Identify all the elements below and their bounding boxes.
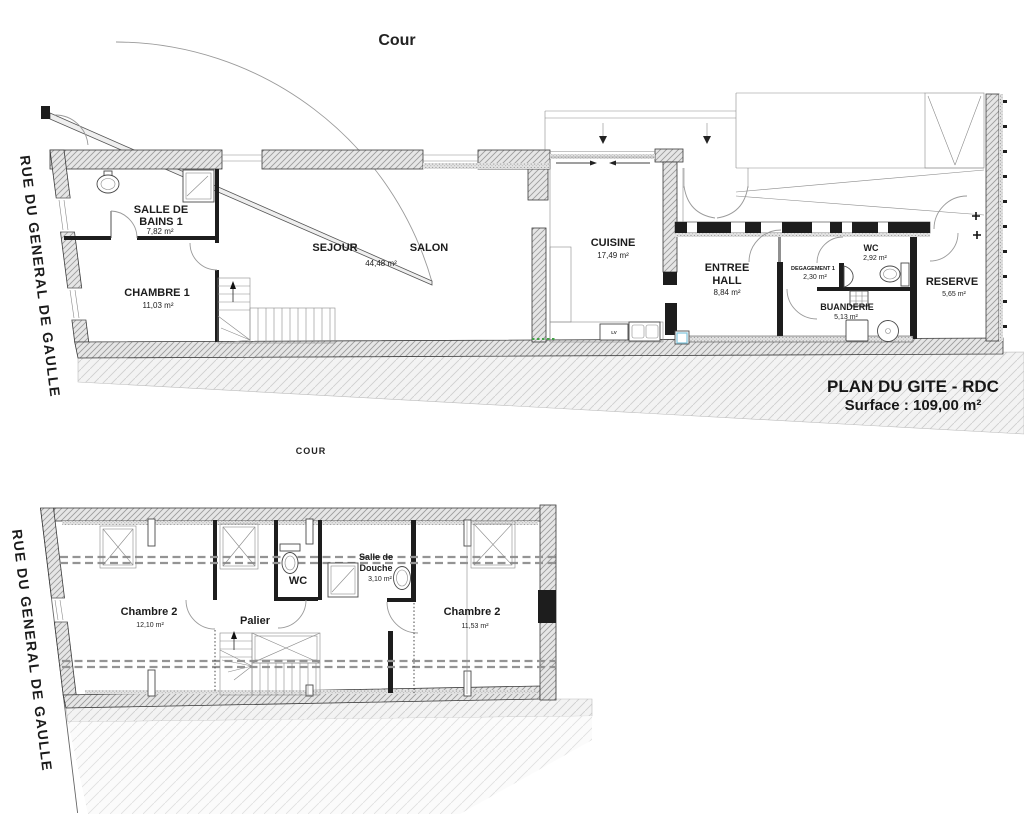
rdc-stairs — [218, 278, 335, 343]
etage-plan: COUR Chambre 2 12,10 m² Palier WC Salle … — [41, 446, 593, 814]
bath-sink-icon — [97, 171, 119, 193]
floor-plan-canvas: Cour SALLE DE BAINS 1 7,82 m² CHAMBRE 1 … — [0, 0, 1024, 814]
glazed-band-piers — [675, 222, 930, 233]
room-area-degagement: 2,30 m² — [803, 274, 827, 281]
plan-title: PLAN DU GITE - RDC — [827, 377, 999, 396]
rdc-canopy-courtyard — [545, 93, 984, 239]
wall-tick-marks — [1003, 100, 1007, 328]
room-label-wc-etage: WC — [289, 575, 307, 587]
room-label-sdb-line1: SALLE DE — [134, 204, 188, 216]
room-area-chambre2-right: 11,53 m² — [461, 623, 489, 630]
room-label-douche-line1: Salle de — [359, 552, 393, 562]
room-label-entree-line1: ENTREE — [705, 262, 750, 274]
dishwasher-label: LV — [611, 330, 616, 335]
wc-sink-icon — [844, 266, 853, 287]
room-area-reserve: 5,65 m² — [942, 291, 966, 298]
floor-plan-page: Cour SALLE DE BAINS 1 7,82 m² CHAMBRE 1 … — [0, 0, 1024, 814]
courtyard-label-etage: COUR — [296, 446, 327, 456]
etage-sink-icon — [394, 567, 411, 590]
room-label-degagement: DEGAGEMENT 1 — [791, 266, 835, 272]
shower-icon — [183, 170, 214, 202]
rdc-plan: Cour SALLE DE BAINS 1 7,82 m² CHAMBRE 1 … — [41, 32, 1024, 434]
room-label-salon: SALON — [410, 242, 449, 254]
room-area-wc: 2,92 m² — [863, 255, 887, 262]
room-label-palier: Palier — [240, 615, 271, 627]
door-cross-marks — [972, 212, 981, 239]
room-area-chambre2-left: 12,10 m² — [136, 622, 164, 629]
room-area-entree: 8,84 m² — [713, 288, 740, 297]
street-labels: RUE DU GENERAL DE GAULLE RUE DU GENERAL … — [9, 154, 63, 772]
room-label-chambre1: CHAMBRE 1 — [124, 287, 189, 299]
room-label-cuisine: CUISINE — [591, 237, 636, 249]
room-area-chambre1: 11,03 m² — [143, 301, 174, 310]
etage-stairs — [220, 631, 320, 695]
room-area-salon: 44,48 m² — [365, 259, 397, 268]
room-area-cuisine: 17,49 m² — [597, 251, 629, 260]
room-area-douche: 3,10 m² — [368, 576, 392, 583]
wc-toilet-icon — [880, 263, 909, 286]
room-label-entree-line2: HALL — [712, 275, 742, 287]
room-label-buanderie: BUANDERIE — [820, 302, 874, 312]
etage-toilet-icon — [280, 544, 300, 574]
room-label-chambre2-left: Chambre 2 — [121, 606, 178, 618]
room-label-douche-line2: Douche — [359, 563, 392, 573]
etage-shower-icon — [328, 563, 358, 597]
room-area-sdb: 7,82 m² — [146, 227, 173, 236]
courtyard-label-top: Cour — [378, 32, 415, 49]
plan-surface: Surface : 109,00 m² — [845, 397, 982, 414]
rdc-windows — [56, 155, 478, 320]
wall-posts — [148, 519, 471, 696]
etage-doors — [186, 600, 418, 693]
room-label-reserve: RESERVE — [926, 276, 978, 288]
room-label-sejour: SEJOUR — [312, 242, 357, 254]
rdc-walls — [50, 94, 1007, 358]
room-label-chambre2-right: Chambre 2 — [444, 606, 501, 618]
room-area-buanderie: 5,13 m² — [834, 314, 858, 321]
room-label-wc: WC — [864, 243, 879, 253]
